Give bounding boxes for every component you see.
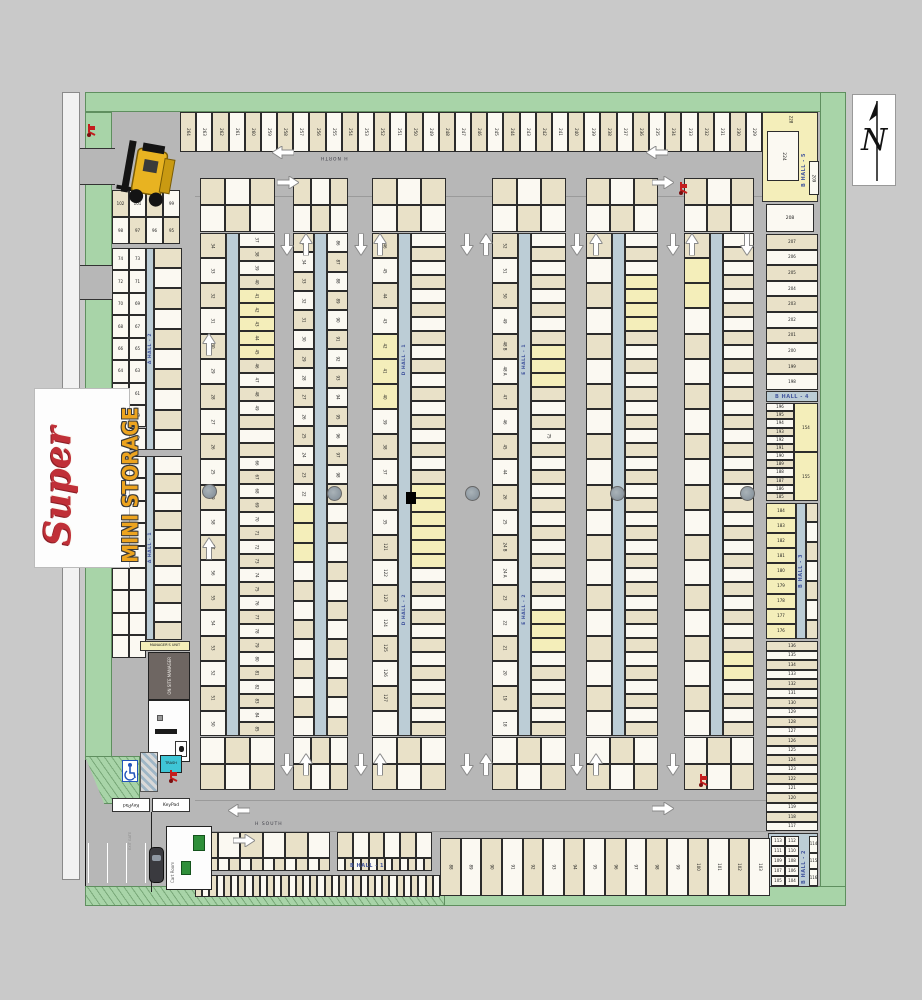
unit-cell bbox=[625, 331, 658, 345]
unit-cell bbox=[707, 178, 730, 205]
direction-arrow-right bbox=[652, 800, 674, 813]
unit-cell bbox=[200, 764, 225, 791]
unit-cell bbox=[200, 737, 225, 764]
unit-cell bbox=[625, 680, 658, 694]
unit-cell bbox=[375, 875, 382, 897]
unit-cell: 118 bbox=[766, 812, 818, 822]
hall-b4: B HALL - 4 bbox=[766, 391, 818, 402]
strip4-top-cluster bbox=[492, 178, 566, 232]
strip6-corridor bbox=[710, 233, 723, 736]
unit-cell: 75 bbox=[531, 429, 566, 443]
unit-cell bbox=[426, 875, 433, 897]
direction-arrow-down bbox=[283, 234, 296, 256]
unit-cell: 72 bbox=[112, 270, 129, 292]
unit-cell bbox=[285, 858, 296, 871]
unit-cell bbox=[625, 582, 658, 596]
unit-cell bbox=[325, 875, 332, 897]
unit-cell bbox=[411, 722, 446, 736]
unit-cell bbox=[217, 875, 224, 897]
unit-cell bbox=[806, 600, 818, 619]
hall-b2-units: 113112111110109108107106105104 bbox=[771, 836, 799, 886]
unit-cell: 21 bbox=[492, 636, 518, 661]
direction-arrow-up bbox=[588, 754, 601, 776]
unit-cell bbox=[723, 415, 754, 429]
unit-cell: 178 bbox=[766, 594, 796, 609]
unit-cell bbox=[293, 717, 314, 736]
unit-cell bbox=[586, 409, 612, 434]
unit-cell bbox=[610, 764, 634, 791]
managers-unit: MANAGER'S UNIT bbox=[140, 641, 190, 651]
unit-cell bbox=[684, 409, 710, 434]
unit-cell: 107 bbox=[771, 866, 785, 876]
unit-cell: 104 bbox=[785, 876, 799, 886]
unit-cell: 32 bbox=[293, 291, 314, 310]
unit-cell bbox=[327, 620, 348, 639]
hall-b4-units-right: 154155 bbox=[794, 403, 818, 501]
unit-cell bbox=[411, 289, 446, 303]
unit-cell: 126 bbox=[766, 736, 818, 746]
unit-cell: 127 bbox=[766, 727, 818, 737]
unit-cell bbox=[531, 289, 566, 303]
unit-cell: 71 bbox=[129, 270, 146, 292]
unit-cell: 85 bbox=[239, 722, 275, 736]
unit-cell: 129 bbox=[766, 708, 818, 718]
unit-cell bbox=[337, 858, 345, 871]
direction-arrow-left bbox=[272, 148, 294, 161]
strip1-bottom-cluster bbox=[200, 737, 275, 790]
handicap-parking bbox=[122, 760, 138, 782]
strip2: 3534333231302928272625242322 86878889909… bbox=[293, 233, 348, 736]
unit-cell bbox=[707, 764, 730, 791]
keypad-exit-label: KeyPad bbox=[123, 803, 139, 808]
unit-cell bbox=[806, 503, 818, 522]
unit-cell: 179 bbox=[766, 579, 796, 594]
unit-cell bbox=[517, 764, 542, 791]
unit-cell: 58 bbox=[200, 510, 226, 535]
unit-cell: 29 bbox=[200, 359, 226, 384]
unit-cell bbox=[531, 512, 566, 526]
bhall1-bottom-row bbox=[195, 875, 440, 897]
unit-cell bbox=[372, 178, 397, 205]
unit-cell: 91 bbox=[502, 838, 523, 896]
unit-cell: 99 bbox=[667, 838, 688, 896]
unit-cell: 241 bbox=[552, 112, 568, 152]
unit-224: 224 bbox=[767, 131, 799, 181]
unit-cell bbox=[625, 596, 658, 610]
unit-cell bbox=[112, 568, 129, 590]
unit-cell bbox=[723, 275, 754, 289]
unit-cell bbox=[411, 470, 446, 484]
unit-cell bbox=[416, 858, 424, 871]
unit-cell bbox=[250, 737, 275, 764]
unit-cell: 247 bbox=[455, 112, 471, 152]
unit-cell bbox=[541, 178, 566, 205]
unit-cell bbox=[531, 540, 566, 554]
unit-cell: 190 bbox=[766, 452, 794, 460]
unit-cell bbox=[586, 283, 612, 308]
hall-label-e1: E HALL - 1 bbox=[522, 344, 527, 375]
unit-cell bbox=[684, 205, 707, 232]
unit-cell: 126 bbox=[372, 661, 398, 686]
unit-cell: 123 bbox=[766, 765, 818, 775]
unit-cell: 180 bbox=[766, 563, 796, 578]
direction-arrow-up bbox=[588, 234, 601, 256]
unit-cell: 195 bbox=[766, 411, 794, 419]
bhall1-group1-large bbox=[195, 832, 330, 858]
unit-cell: 244 bbox=[503, 112, 519, 152]
unit-cell bbox=[634, 737, 658, 764]
hall-label-d1: D HALL - 1 bbox=[402, 344, 407, 375]
strip6 bbox=[684, 233, 754, 736]
unit-cell bbox=[723, 526, 754, 540]
unit-cell bbox=[723, 554, 754, 568]
unit-cell bbox=[625, 261, 658, 275]
unit-cell bbox=[337, 832, 353, 858]
unit-cell: 76 bbox=[239, 596, 275, 610]
strip5 bbox=[586, 233, 658, 736]
unit-cell: 44 bbox=[239, 331, 275, 345]
unit-cell: 31 bbox=[293, 310, 314, 329]
unit-cell bbox=[411, 596, 446, 610]
unit-cell: 32 bbox=[200, 283, 226, 308]
unit-cell bbox=[311, 764, 329, 791]
unit-cell bbox=[293, 504, 314, 523]
unit-cell bbox=[293, 205, 311, 232]
direction-arrow-up bbox=[298, 754, 311, 776]
unit-cell: 122 bbox=[766, 774, 818, 784]
unit-cell bbox=[625, 568, 658, 582]
unit-cell bbox=[411, 457, 446, 471]
unit-cell bbox=[317, 875, 324, 897]
unit-cell: 154 bbox=[794, 403, 818, 452]
unit-cell: 255 bbox=[326, 112, 342, 152]
unit-cell: 49 bbox=[239, 401, 275, 415]
unit-cell: 183 bbox=[766, 518, 796, 533]
unit-cell bbox=[311, 178, 329, 205]
unit-cell: 83 bbox=[239, 694, 275, 708]
unit-cell bbox=[625, 554, 658, 568]
unit-cell bbox=[293, 601, 314, 620]
direction-arrow-down bbox=[743, 234, 756, 256]
unit-cell: 135 bbox=[766, 651, 818, 661]
unit-cell bbox=[723, 345, 754, 359]
hall-label-b1: B HALL - 1 bbox=[350, 863, 384, 869]
unit-cell: 207 bbox=[766, 234, 818, 250]
unit-cell bbox=[327, 639, 348, 658]
unit-cell bbox=[154, 430, 182, 450]
unit-cell bbox=[684, 686, 710, 711]
unit-cell bbox=[327, 504, 348, 523]
unit-cell: 98 bbox=[112, 217, 129, 244]
unit-cell bbox=[531, 345, 566, 359]
unit-cell bbox=[625, 708, 658, 722]
unit-cell: 95 bbox=[584, 838, 605, 896]
unit-cell: 123 bbox=[372, 585, 398, 610]
unit-cell bbox=[731, 764, 754, 791]
unit-cell bbox=[384, 832, 400, 858]
unit-cell bbox=[806, 581, 818, 600]
unit-cell bbox=[433, 875, 440, 897]
unit-cell bbox=[225, 764, 250, 791]
unit-cell bbox=[684, 434, 710, 459]
unit-cell bbox=[723, 610, 754, 624]
unit-cell: 51 bbox=[492, 258, 518, 283]
hall-label-a2: A HALL - 2 bbox=[148, 333, 153, 364]
unit-cell bbox=[218, 858, 229, 871]
unit-cell: 132 bbox=[766, 679, 818, 689]
unit-cell: 199 bbox=[766, 359, 818, 375]
unit-cell bbox=[586, 636, 612, 661]
unit-cell: 108 bbox=[785, 856, 799, 866]
unit-cell: 37 bbox=[372, 459, 398, 484]
unit-cell bbox=[303, 875, 310, 897]
unit-cell: 56 bbox=[200, 560, 226, 585]
unit-cell: 35 bbox=[372, 510, 398, 535]
unit-cell bbox=[281, 875, 288, 897]
trash-label: TRASH bbox=[165, 762, 177, 766]
unit-cell: 28 bbox=[293, 368, 314, 387]
unit-cell bbox=[293, 523, 314, 542]
unit-cell: 176 bbox=[766, 624, 796, 639]
unit-cell: 63 bbox=[129, 360, 146, 382]
unit-cell bbox=[723, 512, 754, 526]
unit-cell bbox=[411, 708, 446, 722]
unit-cell bbox=[684, 384, 710, 409]
direction-arrow-down bbox=[669, 234, 682, 256]
unit-cell bbox=[531, 568, 566, 582]
unit-cell bbox=[531, 498, 566, 512]
unit-cell bbox=[411, 373, 446, 387]
unit-cell bbox=[293, 639, 314, 658]
unit-cell: 121 bbox=[372, 535, 398, 560]
unit-cell bbox=[411, 415, 446, 429]
unit-cell bbox=[586, 585, 612, 610]
unit-cell: 25 bbox=[293, 426, 314, 445]
unit-cell bbox=[200, 205, 225, 232]
unit-cell: 41 bbox=[239, 289, 275, 303]
unit-cell bbox=[625, 415, 658, 429]
unit-cell bbox=[293, 581, 314, 600]
unit-cell: 257 bbox=[293, 112, 309, 152]
unit-cell: 23 bbox=[492, 585, 518, 610]
unit-cell bbox=[154, 248, 182, 268]
on-site-manager-label: ON SITE MANAGER bbox=[167, 657, 172, 695]
unit-cell: 31 bbox=[200, 308, 226, 333]
direction-arrow-up bbox=[298, 234, 311, 256]
unit-cell: 40 bbox=[239, 275, 275, 289]
toilet-icon bbox=[179, 746, 184, 752]
unit-cell: 41 bbox=[372, 359, 398, 384]
hall-label-a1: A HALL - 1 bbox=[148, 532, 153, 563]
unit-cell bbox=[806, 561, 818, 580]
strip1-corridor bbox=[226, 233, 239, 736]
unit-cell bbox=[411, 568, 446, 582]
unit-cell bbox=[625, 303, 658, 317]
unit-cell bbox=[492, 764, 517, 791]
unit-cell: 191 bbox=[766, 444, 794, 452]
unit-cell: 49 bbox=[492, 308, 518, 333]
unit-cell: 260 bbox=[245, 112, 261, 152]
unit-cell bbox=[586, 178, 610, 205]
unit-cell bbox=[253, 875, 260, 897]
unit-cell bbox=[263, 832, 286, 858]
unit-cell bbox=[723, 457, 754, 471]
unit-cell bbox=[723, 638, 754, 652]
unit-cell bbox=[586, 334, 612, 359]
unit-cell bbox=[586, 258, 612, 283]
unit-cell: 54 bbox=[200, 610, 226, 635]
direction-arrow-down bbox=[669, 754, 682, 776]
unit-cell bbox=[806, 522, 818, 541]
unit-cell: 26 bbox=[200, 434, 226, 459]
unit-cell bbox=[625, 401, 658, 415]
hall-a2: A HALL - 2 bbox=[146, 248, 154, 450]
compass-letter: N bbox=[861, 123, 887, 158]
unit-cell: 73 bbox=[129, 248, 146, 270]
unit-cell: 97 bbox=[626, 838, 647, 896]
unit-cell bbox=[625, 275, 658, 289]
unit-cell: 189 bbox=[766, 460, 794, 468]
unit-cell bbox=[154, 474, 182, 492]
unit-cell bbox=[327, 717, 348, 736]
unit-cell: 38 bbox=[239, 247, 275, 261]
unit-cell bbox=[492, 205, 517, 232]
unit-cell: 44 bbox=[492, 459, 518, 484]
unit-cell: 90 bbox=[481, 838, 502, 896]
unit-cell bbox=[225, 178, 250, 205]
unit-cell: 264 bbox=[180, 112, 196, 152]
unit-cell: 84 bbox=[239, 708, 275, 722]
unit-cell: 124 bbox=[766, 755, 818, 765]
unit-cell: 25 bbox=[200, 459, 226, 484]
unit-cell bbox=[625, 359, 658, 373]
unit-cell: 196 bbox=[766, 403, 794, 411]
unit-cell: 112 bbox=[785, 836, 799, 846]
hall-label-e2: E HALL - 2 bbox=[522, 594, 527, 625]
unit-cell bbox=[293, 678, 314, 697]
direction-arrow-right bbox=[277, 174, 299, 187]
unit-cell bbox=[723, 708, 754, 722]
unit-cell: 24 B bbox=[492, 535, 518, 560]
unit-cell bbox=[586, 384, 612, 409]
hall-a1: A HALL - 1 bbox=[146, 456, 154, 640]
direction-arrow-up bbox=[201, 334, 214, 356]
unit-cell: 36 bbox=[372, 485, 398, 510]
strip5-corridor bbox=[612, 233, 625, 736]
unit-cell bbox=[250, 178, 275, 205]
unit-cell bbox=[397, 764, 422, 791]
unit-cell: 95 bbox=[163, 217, 180, 244]
unit-cell bbox=[397, 737, 422, 764]
bhall1-group2-large bbox=[337, 832, 432, 858]
unit-cell bbox=[531, 373, 566, 387]
unit-cell bbox=[586, 610, 612, 635]
unit-cell bbox=[421, 205, 446, 232]
unit-cell bbox=[586, 661, 612, 686]
strip2-top-cluster bbox=[293, 178, 348, 232]
unit-cell: 42 bbox=[372, 334, 398, 359]
unit-cell bbox=[361, 875, 368, 897]
unit-cell bbox=[368, 875, 375, 897]
unit-cell: 65 bbox=[129, 338, 146, 360]
cart-icon bbox=[193, 835, 205, 851]
unit-cell: 251 bbox=[390, 112, 406, 152]
unit-cell: 70 bbox=[112, 293, 129, 315]
unit-cell: 256 bbox=[309, 112, 325, 152]
unit-cell bbox=[586, 308, 612, 333]
unit-cell bbox=[408, 858, 416, 871]
unit-cell bbox=[411, 680, 446, 694]
unit-cell bbox=[112, 635, 129, 657]
office-chair bbox=[157, 715, 163, 721]
unit-cell bbox=[610, 178, 634, 205]
unit-cell: 69 bbox=[129, 293, 146, 315]
unit-cell bbox=[684, 610, 710, 635]
unit-cell: 106 bbox=[785, 866, 799, 876]
unit-cell bbox=[723, 359, 754, 373]
unit-cell bbox=[154, 511, 182, 529]
unit-cell: 93 bbox=[327, 368, 348, 387]
unit-cell: 198 bbox=[766, 374, 818, 390]
unit-cell bbox=[625, 694, 658, 708]
unit-cell bbox=[231, 875, 238, 897]
hall-b2-cluster: 113112111110109108107106105104 B HALL - … bbox=[768, 833, 818, 887]
right-column-lower: 1361351341331321311301291281271261251241… bbox=[766, 641, 818, 831]
unit-cell bbox=[723, 568, 754, 582]
unit-cell: 70 bbox=[239, 512, 275, 526]
unit-cell bbox=[285, 832, 308, 858]
direction-arrow-down bbox=[463, 754, 476, 776]
strip4-bottom-cluster bbox=[492, 737, 566, 790]
drain-cover-icon bbox=[327, 486, 342, 501]
unit-cell bbox=[421, 764, 446, 791]
unit-cell bbox=[411, 624, 446, 638]
unit-cell bbox=[723, 652, 754, 666]
cart-icon bbox=[181, 861, 191, 875]
hand-truck-icon bbox=[86, 122, 98, 141]
unit-cell bbox=[625, 457, 658, 471]
unit-cell: 188 bbox=[766, 468, 794, 476]
unit-cell: 253 bbox=[358, 112, 374, 152]
unit-cell: 192 bbox=[766, 436, 794, 444]
unit-cell: 24 bbox=[293, 446, 314, 465]
unit-cell bbox=[330, 737, 348, 764]
unit-cell bbox=[411, 429, 446, 443]
unit-cell: 238 bbox=[600, 112, 616, 152]
hall-label-d2: D HALL - 2 bbox=[402, 594, 407, 625]
unit-cell bbox=[154, 389, 182, 409]
unit-cell bbox=[531, 582, 566, 596]
unit-cell: 66 bbox=[112, 338, 129, 360]
unit-cell bbox=[517, 737, 542, 764]
unit-cell bbox=[154, 456, 182, 474]
unit-cell: 34 bbox=[200, 233, 226, 258]
unit-cell bbox=[625, 722, 658, 736]
unit-cell: 239 bbox=[584, 112, 600, 152]
unit-cell bbox=[531, 401, 566, 415]
unit-cell bbox=[531, 652, 566, 666]
unit-cell bbox=[531, 596, 566, 610]
unit-cell: 124 bbox=[372, 610, 398, 635]
keypad-enter: KeyPad bbox=[152, 798, 190, 812]
unit-cell: 68 bbox=[239, 484, 275, 498]
unit-cell: 28 bbox=[200, 384, 226, 409]
unit-cell bbox=[310, 875, 317, 897]
unit-cell bbox=[723, 373, 754, 387]
unit-cell: 74 bbox=[239, 568, 275, 582]
strip1-top-cluster bbox=[200, 178, 275, 232]
unit-cell bbox=[411, 540, 446, 554]
